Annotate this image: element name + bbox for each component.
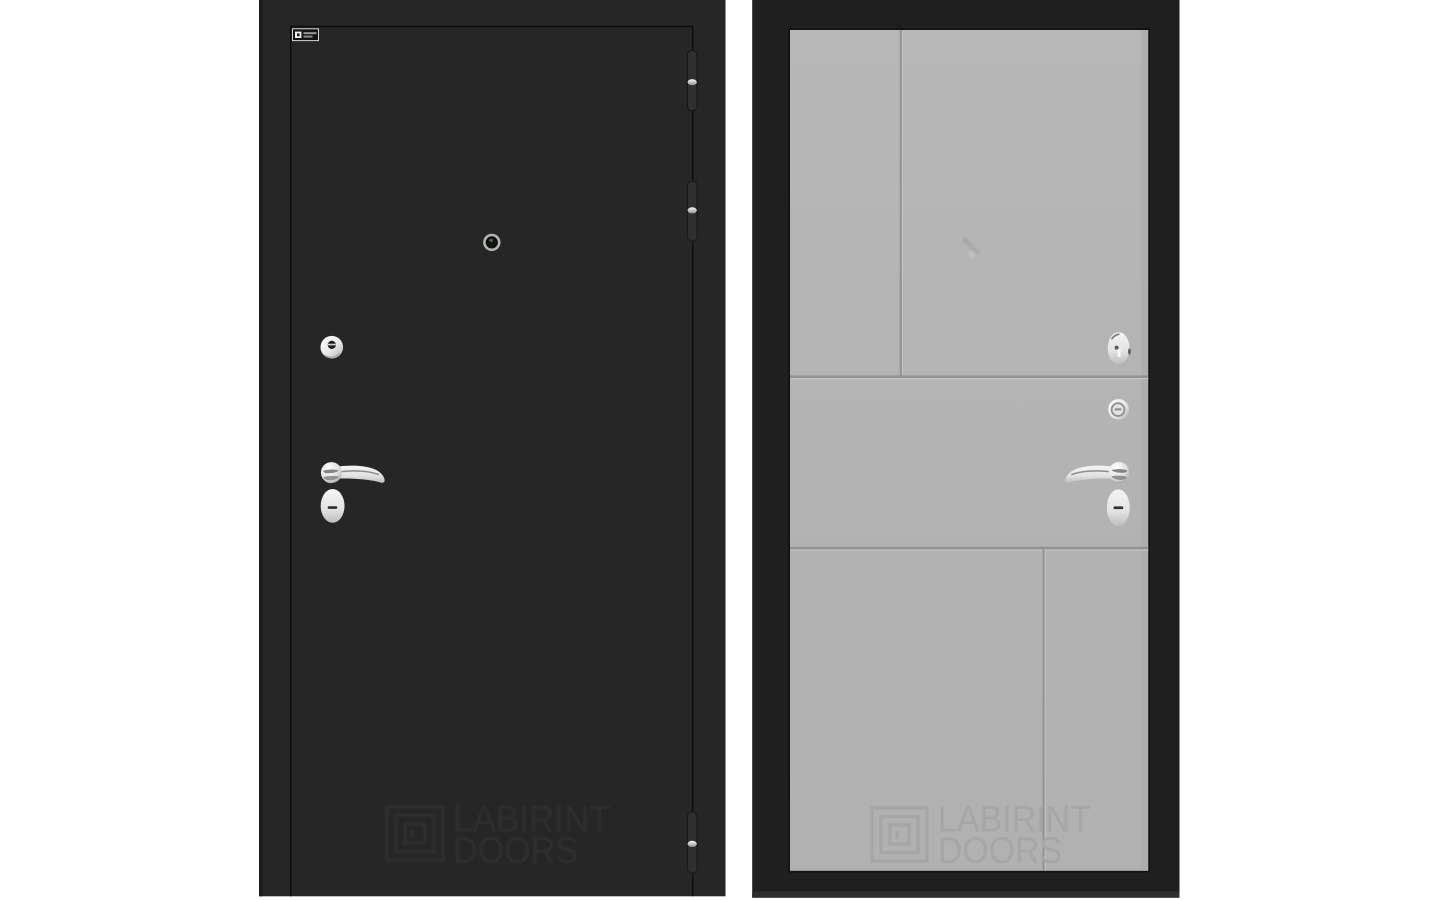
svg-text:DOORS: DOORS [938, 830, 1062, 871]
svg-text:DOORS: DOORS [453, 830, 578, 871]
